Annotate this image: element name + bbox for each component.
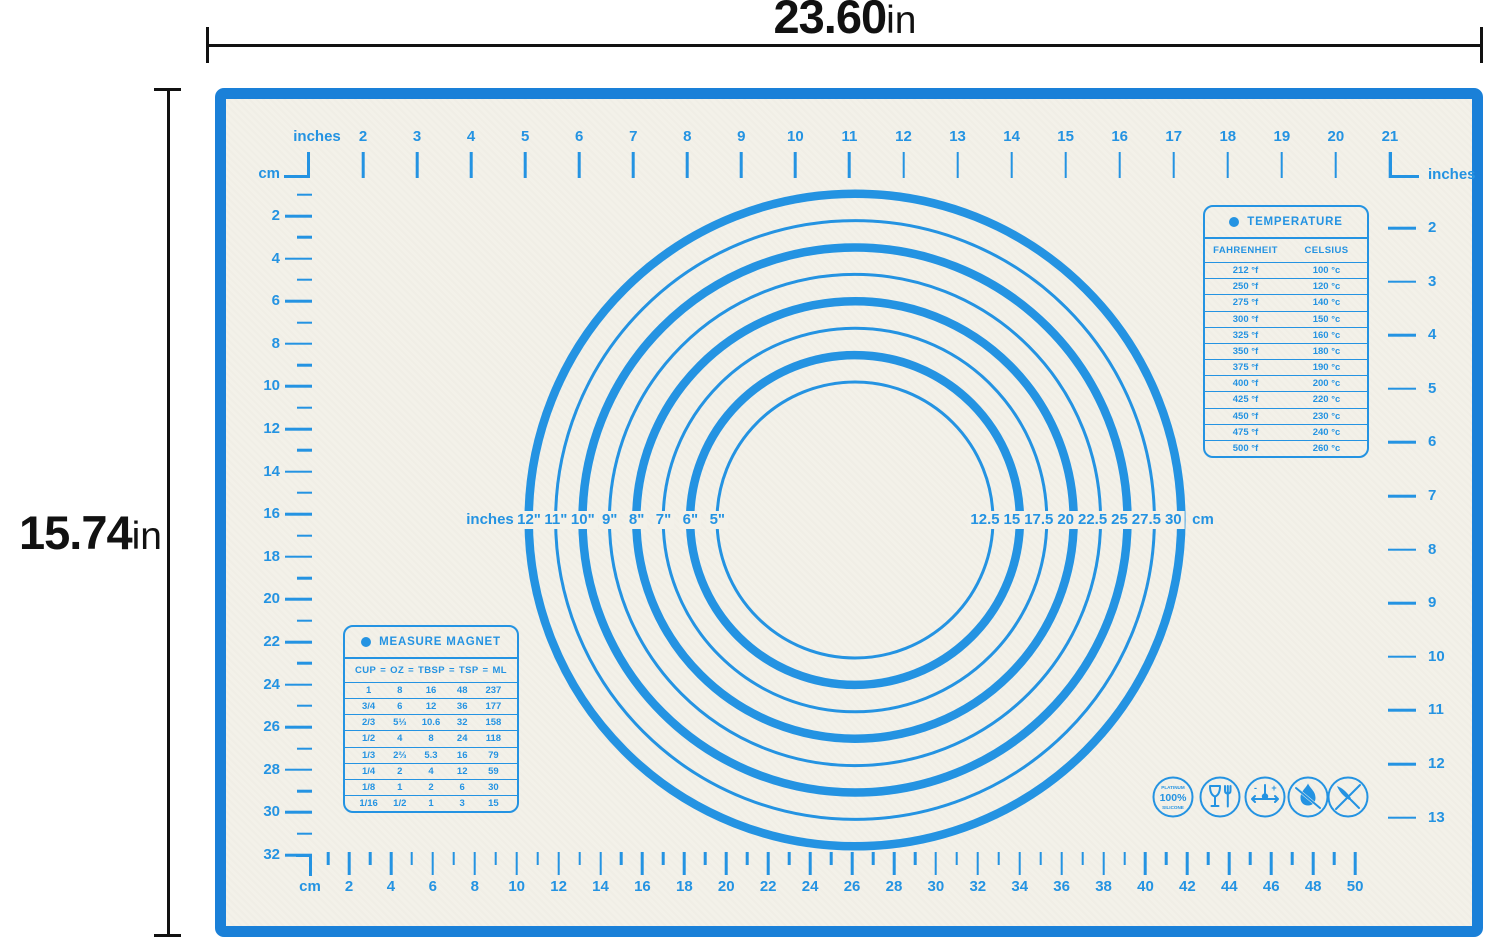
bottom-ruler-number: 30	[928, 878, 945, 896]
product-dimension-figure: { "dimensions": { "width_value": "23.60"…	[0, 0, 1490, 942]
bottom-ruler-tick	[977, 852, 980, 875]
top-ruler-tick	[524, 152, 527, 178]
circle-inch-label: 9"	[599, 511, 620, 529]
top-ruler-tick	[956, 152, 959, 178]
measure-cell: 2	[415, 782, 446, 793]
bottom-ruler-number: 2	[345, 878, 353, 896]
measure-title-text: MEASURE MAGNET	[379, 636, 501, 648]
top-ruler-tick	[740, 152, 743, 178]
width-dimension-label: 23.60in	[595, 0, 1095, 55]
temperature-cell: 260 °c	[1286, 443, 1367, 454]
bottom-ruler-tick	[1060, 852, 1063, 875]
bottom-ruler-minor-tick	[578, 852, 581, 865]
top-ruler-tick	[848, 152, 851, 178]
bottom-ruler-number: 26	[844, 878, 861, 896]
bottom-ruler-number: 42	[1179, 878, 1196, 896]
temperature-cell: 100 °c	[1286, 265, 1367, 276]
top-left-corner-bracket	[284, 152, 310, 178]
right-ruler-tick	[1388, 709, 1416, 712]
left-ruler-minor-tick	[297, 832, 312, 835]
left-ruler-tick	[285, 811, 312, 814]
measure-cell: 5.3	[415, 750, 446, 761]
measure-cell: 2	[384, 766, 415, 777]
measure-cell: 10.6	[415, 717, 446, 728]
width-dimension-line	[207, 44, 1483, 47]
measure-cell: 16	[447, 750, 478, 761]
left-ruler-minor-tick	[297, 619, 312, 622]
left-ruler-minor-tick	[297, 406, 312, 409]
top-ruler-tick	[1172, 152, 1175, 178]
bottom-ruler-tick	[809, 852, 812, 875]
left-ruler-minor-tick	[297, 193, 312, 196]
measure-cell: 24	[447, 733, 478, 744]
left-ruler-tick	[285, 343, 312, 346]
bottom-ruler-tick	[935, 852, 938, 875]
top-ruler-number: 3	[413, 128, 421, 146]
measure-cell: 79	[478, 750, 509, 761]
right-ruler-tick	[1388, 388, 1416, 391]
height-dimension-label: 15.74in	[0, 506, 162, 572]
measure-cell: 237	[478, 685, 509, 696]
svg-text:-: -	[1254, 783, 1257, 793]
width-dimension-endcap-left	[206, 27, 209, 63]
bottom-ruler-minor-tick	[1165, 852, 1168, 865]
measure-cell: 1	[384, 782, 415, 793]
bottom-ruler-tick	[390, 852, 393, 875]
left-ruler-minor-tick	[297, 662, 312, 665]
left-ruler-unit: cm	[244, 165, 280, 183]
left-ruler-number: 22	[238, 633, 280, 651]
temperature-row: 300 °f150 °c	[1205, 312, 1367, 328]
temperature-cell: 375 °f	[1205, 362, 1286, 373]
platinum-silicone-badge: PLATINUM 100% SILICONE	[1151, 775, 1195, 819]
bottom-ruler-tick	[1018, 852, 1021, 875]
top-ruler-number: 5	[521, 128, 529, 146]
temperature-cell: 500 °f	[1205, 443, 1286, 454]
top-ruler-number: 8	[683, 128, 691, 146]
temperature-row: 500 °f260 °c	[1205, 441, 1367, 456]
measure-cell: 2/3	[353, 717, 384, 728]
right-ruler-number: 5	[1428, 380, 1436, 398]
right-ruler-tick	[1388, 763, 1416, 766]
measure-column-header: TSP	[459, 665, 479, 676]
bottom-ruler-number: 50	[1347, 878, 1364, 896]
bottom-ruler-tick	[641, 852, 644, 875]
left-ruler-tick	[285, 385, 312, 388]
bottom-ruler-minor-tick	[1123, 852, 1126, 865]
measure-cell: 2⅔	[384, 750, 415, 761]
top-ruler-tick	[1227, 152, 1230, 178]
bottom-ruler-tick	[348, 852, 351, 875]
left-ruler-number: 16	[238, 505, 280, 523]
temperature-row: 425 °f220 °c	[1205, 392, 1367, 408]
measure-column-header: CUP	[355, 665, 376, 676]
left-ruler-minor-tick	[297, 321, 312, 324]
bottom-ruler-number: 46	[1263, 878, 1280, 896]
measure-cell: 4	[415, 766, 446, 777]
measure-cell: 1/2	[384, 798, 415, 809]
left-ruler-number: 18	[238, 548, 280, 566]
bottom-ruler-tick	[515, 852, 518, 875]
top-ruler-number: 14	[1003, 128, 1020, 146]
right-ruler-tick	[1388, 656, 1416, 659]
bottom-ruler-tick	[1354, 852, 1357, 875]
temperature-cell: 425 °f	[1205, 394, 1286, 405]
height-unit: in	[132, 515, 162, 558]
measure-cell: 6	[447, 782, 478, 793]
top-ruler-number: 21	[1382, 128, 1399, 146]
bottom-ruler-number: 8	[471, 878, 479, 896]
temperature-row: 475 °f240 °c	[1205, 425, 1367, 441]
temperature-cell: 212 °f	[1205, 265, 1286, 276]
bottom-ruler-minor-tick	[746, 852, 749, 865]
left-ruler-tick	[285, 513, 312, 516]
bottom-ruler-minor-tick	[369, 852, 372, 865]
temperature-row: 325 °f160 °c	[1205, 328, 1367, 344]
bottom-ruler-minor-tick	[830, 852, 833, 865]
bottom-ruler-minor-tick	[1249, 852, 1252, 865]
bottom-ruler-number: 44	[1221, 878, 1238, 896]
temperature-cell: 160 °c	[1286, 330, 1367, 341]
right-ruler-number: 2	[1428, 219, 1436, 237]
measure-cell: 30	[478, 782, 509, 793]
right-ruler-tick	[1388, 280, 1416, 283]
top-ruler-tick	[578, 152, 581, 178]
top-ruler-number: 15	[1057, 128, 1074, 146]
svg-text:PLATINUM: PLATINUM	[1161, 785, 1185, 790]
circle-inch-label: 12"	[514, 511, 544, 529]
circle-inch-label: 10"	[568, 511, 598, 529]
heat-resistant-icon: + -	[1243, 775, 1287, 819]
top-ruler-tick	[1010, 152, 1013, 178]
bottom-ruler-tick	[1144, 852, 1147, 875]
bottom-ruler-minor-tick	[914, 852, 917, 865]
bullet-dot-icon	[361, 637, 371, 647]
svg-text:100%: 100%	[1160, 792, 1188, 804]
temperature-row: 400 °f200 °c	[1205, 376, 1367, 392]
bottom-ruler-tick	[1270, 852, 1273, 875]
left-ruler-minor-tick	[297, 790, 312, 793]
top-ruler-number: 6	[575, 128, 583, 146]
temperature-panel: TEMPERATURE FAHRENHEIT CELSIUS 212 °f100…	[1203, 205, 1369, 458]
height-value: 15.74	[19, 506, 132, 559]
circle-cm-label: 30	[1162, 511, 1185, 529]
measure-cell: 6	[384, 701, 415, 712]
bottom-ruler-minor-tick	[662, 852, 665, 865]
right-ruler-number: 12	[1428, 755, 1445, 773]
temperature-row: 250 °f120 °c	[1205, 279, 1367, 295]
measure-cell: 1/4	[353, 766, 384, 777]
width-unit: in	[886, 0, 916, 42]
bottom-ruler-tick	[599, 852, 602, 875]
bottom-ruler-tick	[893, 852, 896, 875]
left-ruler-minor-tick	[297, 705, 312, 708]
measure-cell: 158	[478, 717, 509, 728]
left-ruler-tick	[285, 683, 312, 686]
circle-inch-label: 11"	[541, 511, 570, 529]
top-ruler-tick	[632, 152, 635, 178]
top-ruler-tick	[1335, 152, 1338, 178]
measure-cell: 1/2	[353, 733, 384, 744]
left-ruler-number: 12	[238, 420, 280, 438]
bottom-ruler-tick	[432, 852, 435, 875]
temperature-cell: 250 °f	[1205, 281, 1286, 292]
top-ruler-number: 20	[1328, 128, 1345, 146]
measure-row: 1/161/21315	[345, 796, 517, 811]
right-ruler-number: 4	[1428, 326, 1436, 344]
measure-cell: 3	[447, 798, 478, 809]
temperature-column-headers: FAHRENHEIT CELSIUS	[1205, 239, 1367, 263]
top-ruler-number: 9	[737, 128, 745, 146]
temperature-cell: 200 °c	[1286, 378, 1367, 389]
bottom-ruler-minor-tick	[411, 852, 414, 865]
left-ruler-number: 20	[238, 590, 280, 608]
circle-inch-label: 7"	[653, 511, 674, 529]
svg-text:SILICONE: SILICONE	[1162, 805, 1184, 810]
top-ruler-tick	[794, 152, 797, 178]
temperature-row: 450 °f230 °c	[1205, 409, 1367, 425]
right-ruler-number: 10	[1428, 648, 1445, 666]
top-ruler-tick	[470, 152, 473, 178]
width-dimension-endcap-right	[1480, 27, 1483, 63]
celsius-header: CELSIUS	[1286, 245, 1367, 256]
bottom-ruler-minor-tick	[453, 852, 456, 865]
bottom-ruler-tick	[767, 852, 770, 875]
circle-cm-label: 22.5	[1075, 511, 1110, 529]
right-ruler-tick	[1388, 334, 1416, 337]
measure-column-headers: CUP=OZ=TBSP=TSP=ML	[345, 659, 517, 683]
right-ruler-tick	[1388, 602, 1416, 605]
temperature-cell: 230 °c	[1286, 411, 1367, 422]
equals-separator: =	[449, 665, 455, 676]
measure-row: 1/24824118	[345, 731, 517, 747]
left-ruler-minor-tick	[297, 492, 312, 495]
measure-cell: 15	[478, 798, 509, 809]
measure-cell: 8	[415, 733, 446, 744]
left-ruler-minor-tick	[297, 279, 312, 282]
bottom-ruler-number: 4	[387, 878, 395, 896]
top-ruler-unit: inches	[293, 128, 341, 146]
left-ruler-tick	[285, 556, 312, 559]
bottom-ruler-minor-tick	[1081, 852, 1084, 865]
height-dimension-endcap-bottom	[154, 934, 181, 937]
left-ruler-number: 30	[238, 803, 280, 821]
temperature-cell: 300 °f	[1205, 314, 1286, 325]
measure-row: 1/4241259	[345, 764, 517, 780]
temperature-cell: 120 °c	[1286, 281, 1367, 292]
measure-cell: 8	[384, 685, 415, 696]
bottom-ruler-minor-tick	[956, 852, 959, 865]
top-ruler-number: 2	[359, 128, 367, 146]
circle-cm-label: 17.5	[1021, 511, 1056, 529]
left-ruler-minor-tick	[297, 577, 312, 580]
bottom-ruler-tick	[683, 852, 686, 875]
top-ruler-number: 10	[787, 128, 804, 146]
bottom-ruler-minor-tick	[620, 852, 623, 865]
right-ruler-number: 3	[1428, 273, 1436, 291]
right-ruler-tick	[1388, 441, 1416, 444]
temperature-row: 375 °f190 °c	[1205, 360, 1367, 376]
right-ruler-number: 8	[1428, 541, 1436, 559]
measure-cell: 32	[447, 717, 478, 728]
measure-row: 3/461236177	[345, 699, 517, 715]
circle-ruler-unit-cm: cm	[1189, 511, 1217, 529]
right-ruler-tick	[1388, 548, 1416, 551]
circle-cm-label: 20	[1054, 511, 1077, 529]
bottom-ruler-minor-tick	[704, 852, 707, 865]
temperature-cell: 275 °f	[1205, 297, 1286, 308]
measure-cell: 12	[415, 701, 446, 712]
left-ruler-tick	[285, 598, 312, 601]
right-ruler-tick	[1388, 495, 1416, 498]
right-ruler-number: 11	[1428, 701, 1444, 719]
no-knife-icon	[1326, 775, 1370, 819]
measure-cell: 16	[415, 685, 446, 696]
temperature-cell: 400 °f	[1205, 378, 1286, 389]
bottom-ruler-number: 10	[508, 878, 525, 896]
bottom-ruler-number: 38	[1095, 878, 1112, 896]
temperature-cell: 350 °f	[1205, 346, 1286, 357]
right-ruler-tick	[1388, 816, 1416, 819]
measure-cell: 177	[478, 701, 509, 712]
bottom-ruler-number: 32	[969, 878, 986, 896]
height-dimension-line	[167, 88, 170, 937]
bottom-ruler-minor-tick	[1291, 852, 1294, 865]
bottom-ruler-tick	[1312, 852, 1315, 875]
measure-cell: 36	[447, 701, 478, 712]
bottom-ruler-minor-tick	[1207, 852, 1210, 865]
equals-separator: =	[408, 665, 414, 676]
diameter-circle	[717, 382, 993, 658]
temperature-cell: 325 °f	[1205, 330, 1286, 341]
right-ruler-unit: inches	[1428, 166, 1476, 184]
measure-magnet-panel: MEASURE MAGNET CUP=OZ=TBSP=TSP=ML 181648…	[343, 625, 519, 813]
bottom-ruler-minor-tick	[1333, 852, 1336, 865]
circle-inch-label: 5"	[707, 511, 728, 529]
left-ruler-minor-tick	[297, 364, 312, 367]
left-ruler-minor-tick	[297, 449, 312, 452]
top-ruler-tick	[362, 152, 365, 178]
bottom-ruler-minor-tick	[788, 852, 791, 865]
measure-row: 1/812630	[345, 780, 517, 796]
left-ruler-tick	[285, 641, 312, 644]
bottom-ruler-number: 48	[1305, 878, 1322, 896]
measure-cell: 12	[447, 766, 478, 777]
top-ruler-tick	[416, 152, 419, 178]
left-ruler-tick	[285, 428, 312, 431]
top-ruler-number: 19	[1274, 128, 1291, 146]
bottom-ruler-minor-tick	[872, 852, 875, 865]
right-ruler-number: 13	[1428, 809, 1445, 827]
temperature-row: 212 °f100 °c	[1205, 263, 1367, 279]
measure-cell: 1/16	[353, 798, 384, 809]
no-open-flame-icon	[1286, 775, 1330, 819]
baking-mat: inches cm inches TEMPERATURE FAHRENHEIT …	[215, 88, 1483, 937]
measure-cell: 5⅓	[384, 717, 415, 728]
circle-cm-label: 27.5	[1129, 511, 1164, 529]
temperature-title-text: TEMPERATURE	[1247, 216, 1342, 228]
left-ruler-number: 10	[238, 377, 280, 395]
temperature-row: 350 °f180 °c	[1205, 344, 1367, 360]
temperature-cell: 240 °c	[1286, 427, 1367, 438]
top-ruler-tick	[1281, 152, 1284, 178]
measure-cell: 48	[447, 685, 478, 696]
bottom-ruler-minor-tick	[1039, 852, 1042, 865]
left-ruler-tick	[285, 470, 312, 473]
bottom-ruler-tick	[851, 852, 854, 875]
left-ruler-tick	[285, 769, 312, 772]
left-ruler-number: 32	[238, 846, 280, 864]
top-ruler-tick	[1118, 152, 1121, 178]
measure-cell: 118	[478, 733, 509, 744]
right-ruler-tick	[1388, 227, 1416, 230]
temperature-cell: 140 °c	[1286, 297, 1367, 308]
top-ruler-number: 7	[629, 128, 637, 146]
bottom-ruler-tick	[1102, 852, 1105, 875]
bullet-dot-icon	[1229, 217, 1239, 227]
width-value: 23.60	[774, 0, 887, 43]
measure-cell: 1	[353, 685, 384, 696]
measure-row: 181648237	[345, 683, 517, 699]
top-ruler-tick	[1389, 152, 1392, 178]
left-ruler-number: 4	[238, 250, 280, 268]
circle-ruler-unit-inches: inches	[463, 511, 517, 529]
temperature-cell: 450 °f	[1205, 411, 1286, 422]
top-ruler-number: 18	[1219, 128, 1236, 146]
bottom-ruler-minor-tick	[536, 852, 539, 865]
left-ruler-number: 8	[238, 335, 280, 353]
bottom-ruler-number: 16	[634, 878, 651, 896]
left-ruler-number: 24	[238, 676, 280, 694]
measure-row: 2/35⅓10.632158	[345, 715, 517, 731]
right-ruler-number: 7	[1428, 487, 1436, 505]
temperature-cell: 150 °c	[1286, 314, 1367, 325]
left-ruler-number: 2	[238, 207, 280, 225]
temperature-cell: 180 °c	[1286, 346, 1367, 357]
measure-cell: 59	[478, 766, 509, 777]
bottom-ruler-tick	[473, 852, 476, 875]
mat-surface: inches cm inches TEMPERATURE FAHRENHEIT …	[226, 99, 1472, 926]
measure-cell: 3/4	[353, 701, 384, 712]
left-ruler-number: 28	[238, 761, 280, 779]
left-ruler-minor-tick	[297, 534, 312, 537]
measure-cell: 1/8	[353, 782, 384, 793]
top-ruler-tick	[1064, 152, 1067, 178]
bottom-ruler-tick	[557, 852, 560, 875]
circle-cm-label: 25	[1108, 511, 1131, 529]
food-safe-icon	[1198, 775, 1242, 819]
bottom-left-corner-bracket	[296, 854, 312, 876]
measure-cell: 4	[384, 733, 415, 744]
temperature-cell: 190 °c	[1286, 362, 1367, 373]
right-ruler-number: 9	[1428, 594, 1436, 612]
circle-cm-label: 15	[1001, 511, 1024, 529]
measure-column-header: TBSP	[418, 665, 445, 676]
right-ruler-number: 6	[1428, 433, 1436, 451]
top-ruler-number: 4	[467, 128, 475, 146]
temperature-cell: 220 °c	[1286, 394, 1367, 405]
bottom-ruler-tick	[1186, 852, 1189, 875]
left-ruler-tick	[285, 300, 312, 303]
measure-panel-title: MEASURE MAGNET	[345, 627, 517, 659]
bottom-ruler-number: 14	[592, 878, 609, 896]
left-ruler-minor-tick	[297, 236, 312, 239]
left-ruler-number: 26	[238, 718, 280, 736]
left-ruler-tick	[285, 726, 312, 729]
top-ruler-number: 12	[895, 128, 912, 146]
temperature-row: 275 °f140 °c	[1205, 295, 1367, 311]
circle-cm-label: 12.5	[967, 511, 1002, 529]
